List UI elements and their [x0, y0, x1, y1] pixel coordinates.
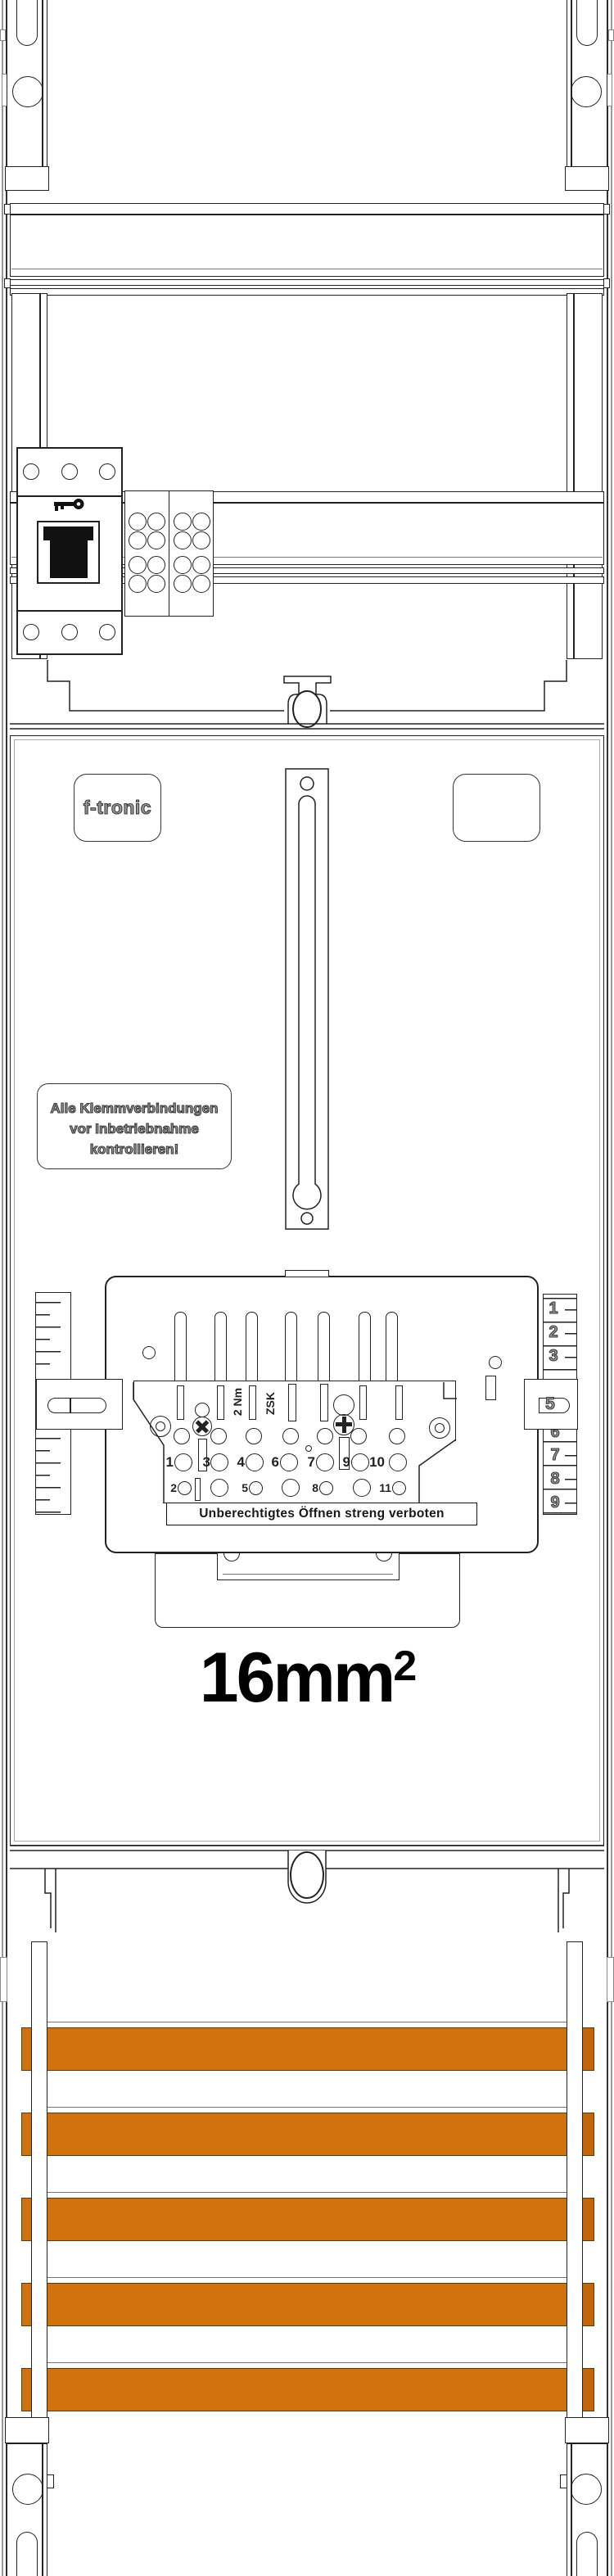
busbar [21, 2283, 594, 2326]
terminal-hole [389, 1428, 405, 1444]
terminal-hole [249, 1481, 263, 1495]
block-hole [192, 556, 210, 574]
screw-cross-slot [342, 1417, 346, 1433]
terminal-number: 5 [237, 1481, 248, 1494]
terminal-hole [317, 1428, 333, 1444]
latch-slot-divider [70, 1398, 71, 1413]
body-slot [320, 1384, 328, 1421]
terminal-hole [392, 1481, 406, 1495]
busbar [21, 2368, 594, 2411]
terminal-hole [319, 1481, 333, 1495]
latch-slot [47, 1398, 106, 1413]
right-wall-inner-line [607, 0, 608, 2576]
terminal-hole [210, 1453, 228, 1471]
cover-rivet-center [435, 1423, 445, 1433]
block-hole [129, 531, 147, 549]
din-rail-band-strip [10, 203, 604, 215]
terminal-hole [351, 1453, 369, 1471]
prohibition-text: Unberechtigtes Öffnen streng verboten [166, 1507, 477, 1521]
brand-logo: f-tronic [74, 797, 161, 819]
terminal-hole [178, 1481, 192, 1495]
block-hole [129, 513, 147, 531]
terminal-hole [174, 1428, 190, 1444]
plate-line [223, 1574, 393, 1575]
rail-hole [12, 76, 43, 107]
comb-ticks [36, 1450, 50, 1516]
band-end-tab [4, 278, 11, 288]
rail-hole [12, 2474, 43, 2505]
busbar-holder-line [43, 2107, 571, 2108]
rail-screw-slot [576, 2532, 598, 2576]
terminal-hole [353, 1479, 371, 1497]
din-rail-band-strip [10, 288, 604, 296]
left-wall-outer-line [2, 0, 3, 2576]
scale-number: 8 [547, 1470, 563, 1489]
module-terminal-hole [61, 463, 78, 480]
rail-hole [571, 76, 602, 107]
scale-number: 9 [547, 1494, 563, 1512]
terminal-number: 2 [165, 1481, 177, 1494]
terminal-hole [350, 1428, 367, 1444]
cover-rivet-center [156, 1421, 165, 1431]
module-divider [17, 610, 122, 612]
block-hole [192, 513, 210, 531]
scale-latch-number: 5 [540, 1394, 560, 1414]
terminal-number: 1 [160, 1454, 174, 1471]
tiny-hole [305, 1445, 312, 1452]
rail-edge-line [571, 0, 572, 166]
terminal-number: 3 [197, 1454, 210, 1471]
block-hole [174, 556, 192, 574]
busbar-support-right [567, 1941, 583, 2474]
lower-cross-bracket [0, 1834, 614, 1973]
terminal-number: 4 [232, 1454, 245, 1471]
sealing-screw-ring [333, 1394, 354, 1416]
terminal-number: 8 [307, 1481, 318, 1494]
scale-number: 3 [545, 1347, 562, 1366]
bottom-left-rail-cap [5, 2417, 49, 2443]
key-icon [52, 496, 85, 514]
terminal-hole [280, 1453, 298, 1471]
rail-end-cap [5, 166, 49, 191]
body-slot [359, 1385, 367, 1420]
body-slot [217, 1385, 224, 1420]
scale-number: 2 [545, 1323, 562, 1342]
band-end-tab [603, 204, 610, 215]
module-terminal-hole [99, 624, 115, 640]
busbar [21, 2027, 594, 2071]
body-slot [195, 1478, 201, 1501]
rail-end-cap [565, 166, 609, 191]
din-rail-band-strip [10, 279, 604, 286]
rail-screw-slot [16, 2532, 38, 2576]
comb-ticks [36, 1314, 50, 1372]
rail-edge-line [573, 293, 575, 659]
sealing-screw-ring [195, 1403, 210, 1417]
rail-screw-slot [576, 0, 598, 46]
size-value: 16mm [200, 1638, 394, 1717]
busbar [21, 2198, 594, 2241]
block-hole [129, 575, 147, 593]
band-end-tab [603, 278, 610, 288]
warning-label-text: Alle Klemmverbindungen vor Inbetriebnahm… [37, 1098, 232, 1159]
din-rail-band-body [10, 215, 604, 277]
block-hole [192, 575, 210, 593]
warning-line: kontrollieren! [37, 1139, 232, 1159]
warning-line: vor Inbetriebnahme [37, 1119, 232, 1139]
feed-terminal-block [124, 490, 169, 617]
comb-ticks [565, 1309, 577, 1358]
terminal-hole [210, 1428, 227, 1444]
block-hole [147, 513, 165, 531]
terminal-hole [210, 1479, 228, 1497]
body-slot [395, 1385, 403, 1420]
terminal-hole [316, 1453, 334, 1471]
feed-terminal-block [169, 490, 214, 617]
rail-edge-line [571, 2443, 572, 2576]
switch-symbol [43, 526, 93, 540]
rail-edge-line [42, 0, 43, 166]
busbar-holder-line [43, 2277, 571, 2278]
conductor-size-label: 16mm2 [147, 1638, 467, 1719]
right-wall-outer-line [611, 0, 612, 2576]
terminal-number: 7 [302, 1454, 315, 1471]
wall-clip [608, 29, 614, 41]
busbar-holder-line [43, 2022, 571, 2022]
meter-cabinet-drawing: f-tronic Alle Klemmverbindungen vor Inbe… [0, 0, 614, 2576]
din-rail-inner-line [11, 269, 603, 269]
terminal-number: 9 [337, 1454, 350, 1471]
plate-inner-rect [217, 1553, 400, 1580]
sealing-strip [285, 768, 329, 1230]
scale-number: 1 [545, 1299, 562, 1318]
module-terminal-hole [61, 624, 78, 640]
block-hole [174, 531, 192, 549]
busbar-support-left [31, 1941, 47, 2474]
rail-screw-slot [16, 0, 38, 46]
block-hole [129, 556, 147, 574]
terminal-hole [282, 1428, 299, 1444]
switch-symbol [50, 540, 88, 578]
wall-clip [0, 29, 6, 41]
upper-cross-bracket [0, 653, 614, 735]
blank-plate [453, 774, 540, 842]
terminal-number: 6 [266, 1454, 279, 1471]
comb-ticks [565, 1455, 577, 1504]
terminal-hole [246, 1428, 262, 1444]
scale-number: 7 [547, 1446, 563, 1465]
size-superscript: 2 [393, 1642, 414, 1691]
terminal-hole [282, 1479, 300, 1497]
band-end-tab [4, 204, 11, 215]
busbar [21, 2113, 594, 2156]
block-hole [147, 575, 165, 593]
busbar-holder-line [43, 2362, 571, 2363]
terminal-number: 11 [375, 1481, 391, 1494]
block-hole [192, 531, 210, 549]
left-wall-inner-line [6, 0, 7, 2576]
rail-hole [571, 2474, 602, 2505]
torque-label: 2 Nm [228, 1381, 247, 1422]
module-terminal-hole [23, 463, 39, 480]
busbar-holder-line [43, 2192, 571, 2193]
block-hole [174, 513, 192, 531]
type-label: ZSK [260, 1383, 280, 1424]
warning-line: Alle Klemmverbindungen [37, 1098, 232, 1119]
body-slot [249, 1385, 256, 1420]
terminal-hole [389, 1453, 407, 1471]
body-slot [177, 1385, 184, 1420]
wall-clip [607, 74, 612, 106]
bottom-right-rail-cap [565, 2417, 609, 2443]
terminal-hole [174, 1453, 192, 1471]
mid-right-rail [567, 293, 603, 659]
module-terminal-hole [23, 624, 39, 640]
module-terminal-hole [99, 463, 115, 480]
rail-edge-line [42, 2443, 43, 2576]
body-slot [288, 1384, 296, 1421]
terminal-hole [246, 1453, 264, 1471]
block-hole [174, 575, 192, 593]
block-hole [147, 556, 165, 574]
block-hole [147, 531, 165, 549]
